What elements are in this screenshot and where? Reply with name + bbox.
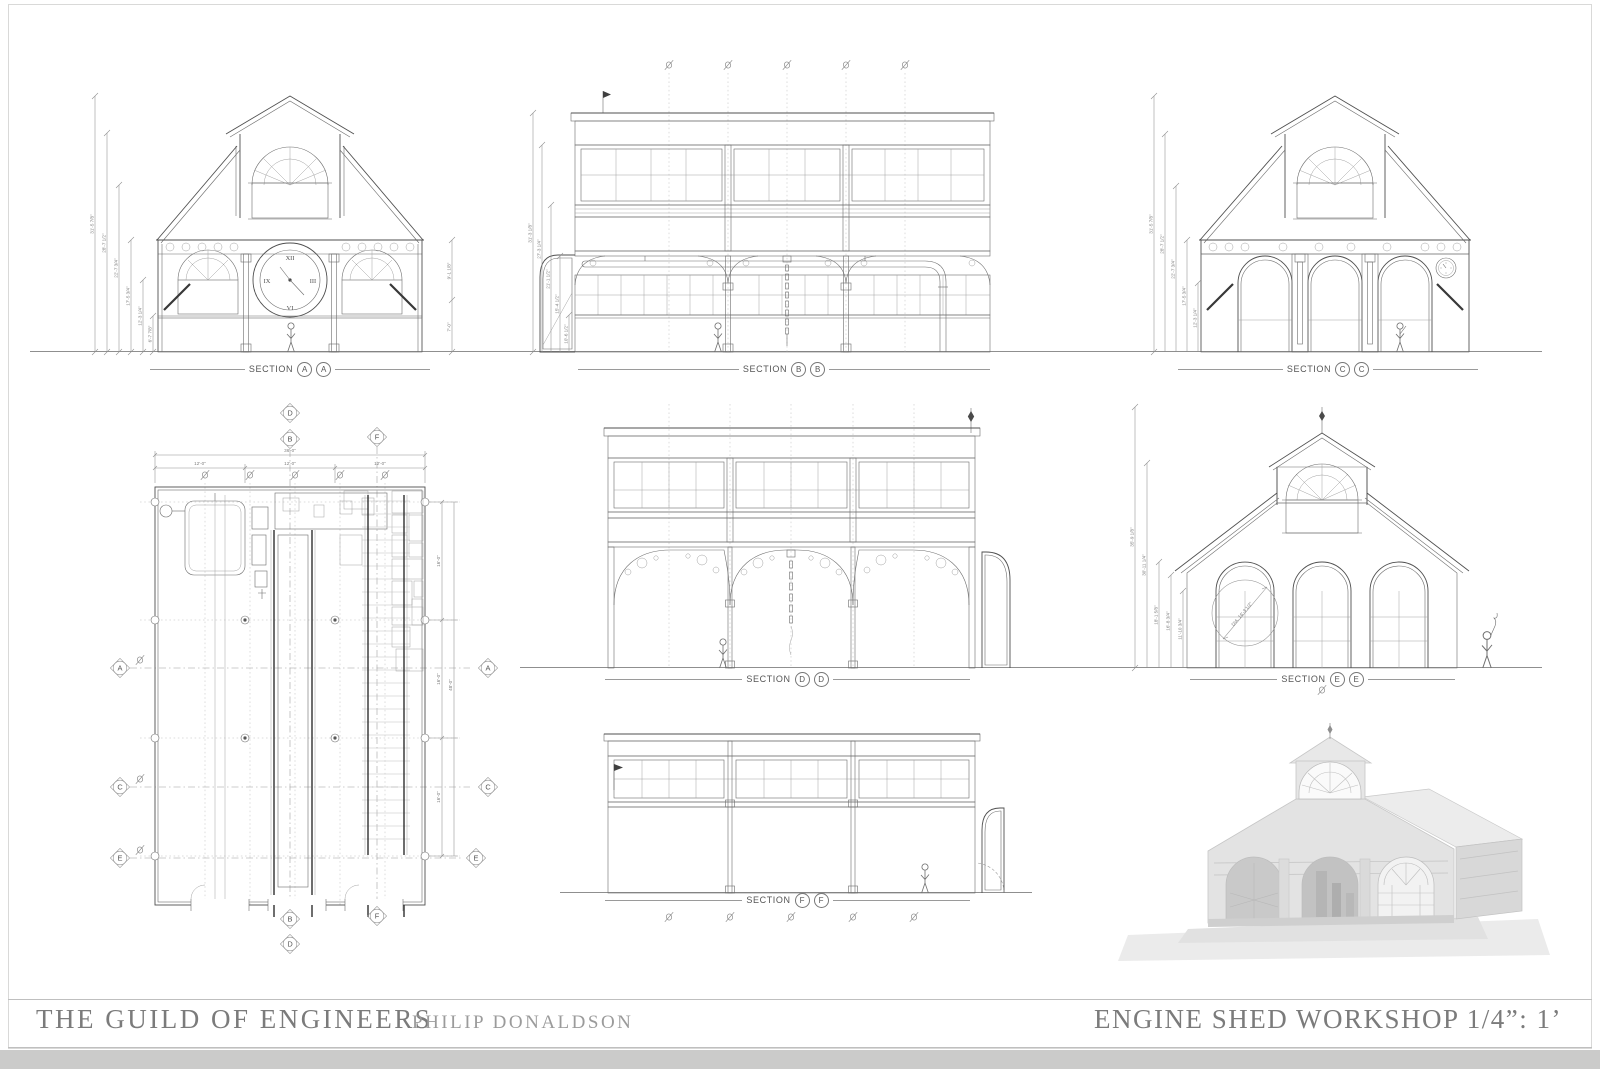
sheet-bottom-edge [0, 1050, 1600, 1069]
svg-text:28'-7 1/2": 28'-7 1/2" [102, 233, 107, 253]
svg-text:12'-3 1/4": 12'-3 1/4" [138, 306, 143, 326]
section-bb-drawing: 31'-3 1/8" 27'-3 1/4" 21'-1 1/2" 15'-4 1… [525, 55, 1005, 385]
svg-text:12'-0": 12'-0" [374, 461, 386, 466]
bb-flag [603, 91, 611, 98]
dd-datum-lines [669, 404, 914, 668]
aa-clock: XII III VI IX [253, 243, 327, 317]
svg-text:28'-7 1/2": 28'-7 1/2" [1160, 234, 1165, 254]
bb-person [714, 323, 722, 352]
cc-columns [1292, 254, 1378, 352]
svg-text:11'-10 3/4": 11'-10 3/4" [1178, 618, 1183, 640]
section-label-ee-text: SECTION [1281, 674, 1325, 684]
section-label-dd-text: SECTION [746, 674, 790, 684]
panel-section-cc: 31'-5 7/8" 28'-7 1/2" 22'-7 3/4" 17'-5 3… [1128, 88, 1540, 378]
plan-boiler [160, 493, 245, 575]
svg-text:10'-6 1/2": 10'-6 1/2" [564, 324, 569, 344]
svg-text:E: E [118, 854, 123, 863]
svg-text:22'-7 3/4": 22'-7 3/4" [1171, 259, 1176, 279]
ee-person [1482, 613, 1497, 668]
bb-building [540, 91, 994, 352]
cc-left-brace [1207, 284, 1233, 310]
svg-text:7'-0": 7'-0" [447, 322, 452, 332]
ee-doors [1216, 562, 1428, 668]
section-label-ff-letter2: F [814, 893, 829, 908]
svg-text:48'-0": 48'-0" [448, 679, 453, 691]
ff-open-door [977, 808, 1004, 893]
section-label-ff-text: SECTION [746, 895, 790, 905]
section-label-cc-letter2: C [1354, 362, 1369, 377]
panel-perspective-render [1118, 693, 1558, 973]
cc-wall-clock [1436, 258, 1456, 278]
svg-text:16'-8 3/4": 16'-8 3/4" [1166, 611, 1171, 631]
drawing-sheet: XII III VI IX 31'-5 7/8" [0, 0, 1600, 1069]
section-dd-drawing [590, 400, 1020, 690]
svg-text:31'-5 7/8": 31'-5 7/8" [1149, 214, 1154, 234]
section-label-ee-letter2: E [1349, 672, 1364, 687]
svg-text:XII: XII [286, 255, 295, 262]
perspective-render [1118, 693, 1558, 973]
aa-dims-right: 9'-1 1/8" 7'-0" [447, 237, 456, 355]
floor-plan-drawing: 36'-0" 12'-0" 12'-0" 12'-0" 16'-0" 16'-0… [100, 395, 500, 965]
section-label-aa-letter2: A [316, 362, 331, 377]
cc-frieze-roundels [1209, 243, 1461, 251]
section-ee-drawing: DIA. 16'-3 1/2" 35'-9 1/8" 30'-11 1/4" 1… [1125, 385, 1535, 697]
dd-finial [968, 411, 974, 422]
bb-wainscot [575, 315, 990, 352]
ff-wainscot [608, 807, 975, 893]
svg-text:16'-0": 16'-0" [436, 673, 441, 685]
section-label-ee: SECTION E E [1190, 672, 1455, 686]
svg-text:D: D [287, 409, 292, 418]
svg-text:A: A [486, 664, 491, 673]
svg-text:F: F [375, 912, 380, 921]
ff-building [604, 734, 1004, 893]
svg-text:22'-7 3/4": 22'-7 3/4" [114, 258, 119, 278]
section-aa-drawing: XII III VI IX 31'-5 7/8" [60, 88, 480, 378]
svg-text:B: B [288, 915, 293, 924]
section-label-bb: SECTION B B [578, 362, 990, 376]
svg-text:9'-1 1/8": 9'-1 1/8" [447, 262, 452, 279]
aa-person [287, 323, 295, 352]
section-label-ff: SECTION F F [605, 893, 970, 907]
bb-clerestory-windows [581, 149, 984, 201]
panel-section-dd [590, 400, 1020, 690]
svg-text:C: C [117, 783, 123, 792]
svg-text:DIA. 16'-3 1/2": DIA. 16'-3 1/2" [1230, 601, 1253, 627]
dd-arcade [614, 550, 969, 605]
svg-text:21'-1 1/2": 21'-1 1/2" [546, 269, 551, 289]
plan-section-cut-lines [130, 447, 470, 911]
section-cc-drawing: 31'-5 7/8" 28'-7 1/2" 22'-7 3/4" 17'-5 3… [1128, 88, 1540, 378]
svg-text:31'-5 7/8": 31'-5 7/8" [90, 214, 95, 234]
panel-floor-plan: 36'-0" 12'-0" 12'-0" 12'-0" 16'-0" 16'-0… [100, 395, 500, 965]
section-label-cc: SECTION C C [1178, 362, 1478, 376]
render-building [1208, 723, 1522, 927]
ff-columns [726, 741, 858, 893]
svg-text:D: D [287, 940, 292, 949]
cc-dims-left: 31'-5 7/8" 28'-7 1/2" 22'-7 3/4" 17'-5 3… [1149, 93, 1202, 355]
svg-text:C: C [485, 783, 491, 792]
section-label-cc-text: SECTION [1287, 364, 1331, 374]
svg-text:15'-4 1/2": 15'-4 1/2" [555, 294, 560, 314]
dd-columns [608, 547, 975, 668]
cc-right-brace [1437, 284, 1463, 310]
svg-text:18'-1 5/8": 18'-1 5/8" [1154, 605, 1159, 625]
svg-text:16'-0": 16'-0" [436, 791, 441, 803]
section-label-ff-letter1: F [795, 893, 810, 908]
ee-dims-left: 35'-9 1/8" 30'-11 1/4" 18'-1 5/8" 16'-8 … [1130, 404, 1187, 671]
plan-centrelines [136, 470, 460, 907]
author-name: PHILIP DONALDSON [412, 1012, 633, 1034]
cc-fan-window [1293, 147, 1377, 219]
drawing-title: ENGINE SHED WORKSHOP 1/4”: 1’ [1094, 1004, 1562, 1035]
ff-windows [614, 760, 969, 798]
dd-open-door [982, 552, 1010, 668]
svg-text:27'-3 1/4": 27'-3 1/4" [537, 239, 542, 259]
section-label-bb-text: SECTION [743, 364, 787, 374]
section-label-bb-letter1: B [791, 362, 806, 377]
aa-dims-left: 31'-5 7/8" 28'-7 1/2" 22'-7 3/4" 17'-5 3… [90, 93, 157, 355]
svg-text:6'-7 7/8": 6'-7 7/8" [148, 325, 153, 342]
ee-finial [1319, 411, 1325, 421]
ff-person [921, 864, 929, 893]
section-label-dd-letter1: D [795, 672, 810, 687]
ee-building: DIA. 16'-3 1/2" [1175, 407, 1497, 668]
svg-text:III: III [310, 278, 316, 285]
panel-section-aa: XII III VI IX 31'-5 7/8" [60, 88, 480, 378]
plan-inspection-pit [271, 530, 315, 895]
section-label-aa-text: SECTION [249, 364, 293, 374]
ee-fan-window [1282, 464, 1362, 533]
aa-building: XII III VI IX [156, 96, 424, 352]
svg-text:E: E [474, 854, 479, 863]
bb-steam-pipe [582, 256, 948, 352]
title-block-bottom-rule [8, 1047, 1592, 1048]
aa-right-brace [390, 284, 416, 310]
cc-person [1396, 323, 1406, 352]
svg-text:35'-9 1/8": 35'-9 1/8" [1130, 527, 1135, 547]
svg-text:12'-0": 12'-0" [284, 461, 296, 466]
svg-text:17'-5 3/4": 17'-5 3/4" [126, 286, 131, 306]
title-block-top-rule [8, 999, 1592, 1000]
studio-name: THE GUILD OF ENGINEERS [36, 1004, 432, 1035]
panel-section-bb: 31'-3 1/8" 27'-3 1/4" 21'-1 1/2" 15'-4 1… [525, 55, 1005, 385]
svg-text:12'-3 1/4": 12'-3 1/4" [1193, 308, 1198, 328]
section-label-cc-letter1: C [1335, 362, 1350, 377]
aa-right-fanlight [342, 250, 402, 314]
plan-engine-machinery [252, 507, 268, 599]
cc-building [1199, 96, 1471, 352]
aa-left-brace [164, 284, 190, 310]
svg-text:12'-0": 12'-0" [194, 461, 206, 466]
svg-text:F: F [375, 433, 380, 442]
aa-fan-window [248, 147, 332, 219]
section-label-bb-letter2: B [810, 362, 825, 377]
svg-text:A: A [118, 664, 123, 673]
panel-section-ee: DIA. 16'-3 1/2" 35'-9 1/8" 30'-11 1/4" 1… [1125, 385, 1535, 697]
svg-text:30'-11 1/4": 30'-11 1/4" [1142, 554, 1147, 576]
svg-text:VI: VI [287, 305, 294, 312]
svg-text:17'-5 3/4": 17'-5 3/4" [1182, 286, 1187, 306]
bb-brackets [575, 256, 990, 285]
section-label-dd-letter2: D [814, 672, 829, 687]
cc-doors [1238, 256, 1432, 352]
dd-upper-windows [614, 462, 969, 508]
svg-text:31'-3 1/8": 31'-3 1/8" [528, 223, 533, 243]
dd-building [604, 408, 1010, 668]
plan-door-openings [191, 885, 404, 917]
section-label-aa-letter1: A [297, 362, 312, 377]
svg-text:IX: IX [264, 278, 271, 285]
bb-datum-lines [665, 60, 909, 352]
section-label-ee-letter1: E [1330, 672, 1345, 687]
ff-flag [614, 764, 623, 790]
svg-text:16'-0": 16'-0" [436, 555, 441, 567]
section-label-dd: SECTION D D [605, 672, 970, 686]
section-label-aa: SECTION A A [150, 362, 430, 376]
bb-dims-left: 31'-3 1/8" 27'-3 1/4" 21'-1 1/2" 15'-4 1… [528, 110, 573, 355]
bb-chain-hoist [783, 256, 791, 346]
plan-dims-right: 16'-0" 16'-0" 16'-0" 48'-0" [429, 500, 458, 858]
aa-left-fanlight [178, 250, 238, 314]
ff-centreline-marks [665, 912, 918, 922]
svg-text:B: B [288, 435, 293, 444]
